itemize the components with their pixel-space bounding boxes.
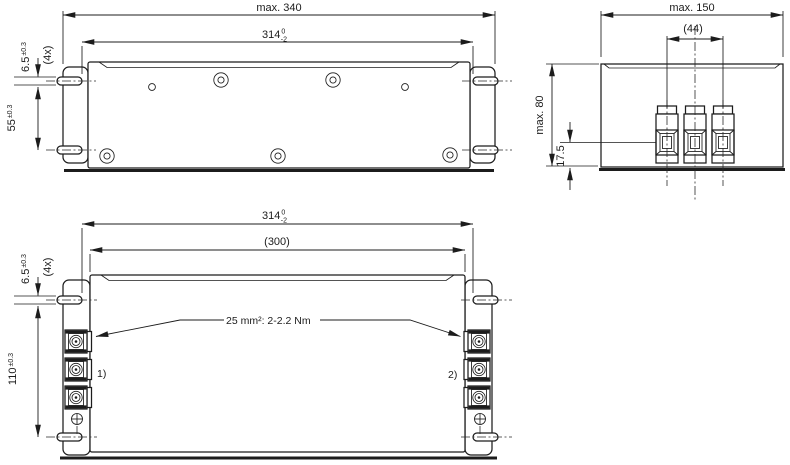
dim-label: 110±0.3	[7, 353, 19, 385]
terminal-front	[65, 386, 92, 409]
dim-label: max. 150	[669, 2, 714, 14]
drawing-canvas: max. 340 3140-2 6.5±0.3 (4x) 55±0.3	[0, 0, 790, 465]
dim-label: 6.5±0.3	[20, 42, 32, 72]
terminal-front	[464, 330, 490, 353]
dim-slot-width: 6.5±0.3 (4x)	[14, 42, 56, 85]
dim-count-label: (4x)	[42, 46, 54, 65]
side-view: max. 150 (44) max. 80 17.5	[534, 2, 785, 202]
bottom-view-body	[90, 275, 465, 452]
terminal-front	[65, 358, 92, 381]
terminal-front	[464, 386, 490, 409]
dim-label: max. 80	[534, 95, 546, 134]
callout-1: 1)	[97, 368, 106, 380]
terminal-front	[65, 330, 92, 353]
dim-slot-span-width: 110±0.3	[7, 306, 38, 437]
callout-2: 2)	[448, 369, 457, 381]
dim-label: (44)	[683, 23, 703, 35]
dim-label: 17.5	[555, 145, 567, 166]
top-view: max. 340 3140-2 6.5±0.3 (4x) 55±0.3	[6, 2, 512, 171]
dim-label: 3140-2	[262, 210, 287, 225]
dim-slot-width: 6.5±0.3 (4x)	[14, 254, 56, 304]
terminal-front	[464, 358, 490, 381]
ground-screw	[475, 414, 486, 425]
terminal-note-label: 25 mm²: 2-2.2 Nm	[226, 315, 311, 327]
dim-label: 6.5±0.3	[20, 254, 32, 284]
technical-drawing: max. 340 3140-2 6.5±0.3 (4x) 55±0.3	[0, 0, 790, 465]
top-view-body	[88, 62, 470, 168]
ground-screw	[72, 414, 83, 425]
dim-body-length: (300)	[90, 236, 465, 272]
dim-count-label: (4x)	[42, 258, 54, 277]
dim-label: max. 340	[256, 2, 301, 14]
dim-label: 3140-2	[262, 29, 287, 44]
bottom-view: 3140-2 (300) 6.5±0.3 (4x) 110±0.3 25 mm²…	[7, 210, 512, 459]
dim-slot-span-depth: 55±0.3	[6, 87, 38, 150]
dim-label: (300)	[264, 236, 290, 248]
dim-label: 55±0.3	[6, 104, 18, 131]
